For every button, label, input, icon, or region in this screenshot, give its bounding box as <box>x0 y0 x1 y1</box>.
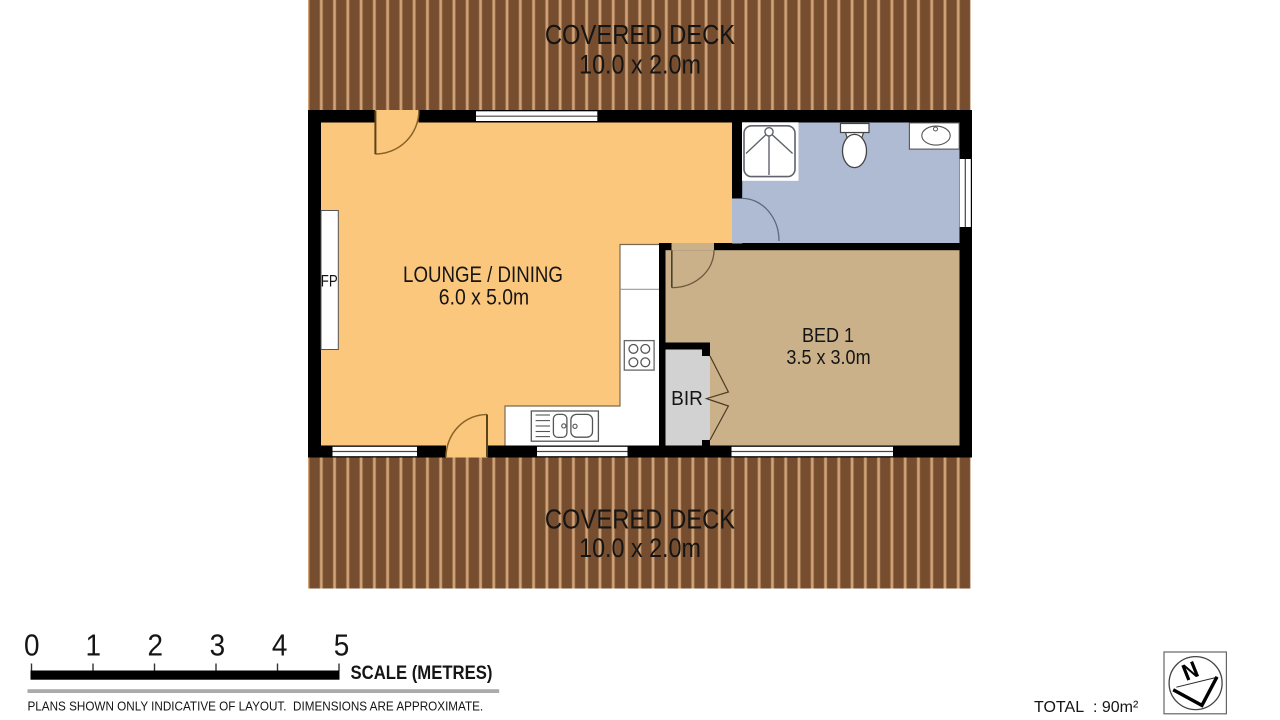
svg-text:10.0 x 2.0m: 10.0 x 2.0m <box>579 50 701 80</box>
svg-text:BIR: BIR <box>671 387 703 410</box>
svg-text:COVERED DECK: COVERED DECK <box>545 18 736 50</box>
svg-text:FP: FP <box>321 272 338 291</box>
svg-text:COVERED DECK: COVERED DECK <box>545 503 736 535</box>
svg-text:6.0 x 5.0m: 6.0 x 5.0m <box>439 286 529 310</box>
svg-text:SCALE (METRES): SCALE (METRES) <box>351 662 493 683</box>
svg-text:3.5 x 3.0m: 3.5 x 3.0m <box>786 347 870 369</box>
svg-text:10.0 x 2.0m: 10.0 x 2.0m <box>579 534 701 564</box>
svg-text:5: 5 <box>334 628 350 663</box>
svg-text:LOUNGE / DINING: LOUNGE / DINING <box>403 264 563 288</box>
svg-text:BED 1: BED 1 <box>802 325 854 347</box>
svg-text:0: 0 <box>24 628 40 663</box>
svg-text:TOTAL : 90m²: TOTAL : 90m² <box>1034 699 1139 716</box>
svg-text:4: 4 <box>272 628 288 663</box>
svg-text:PLANS SHOWN ONLY INDICATIVE OF: PLANS SHOWN ONLY INDICATIVE OF LAYOUT. D… <box>28 699 484 714</box>
svg-text:3: 3 <box>210 628 226 663</box>
svg-text:1: 1 <box>86 628 102 663</box>
svg-text:2: 2 <box>148 628 164 663</box>
